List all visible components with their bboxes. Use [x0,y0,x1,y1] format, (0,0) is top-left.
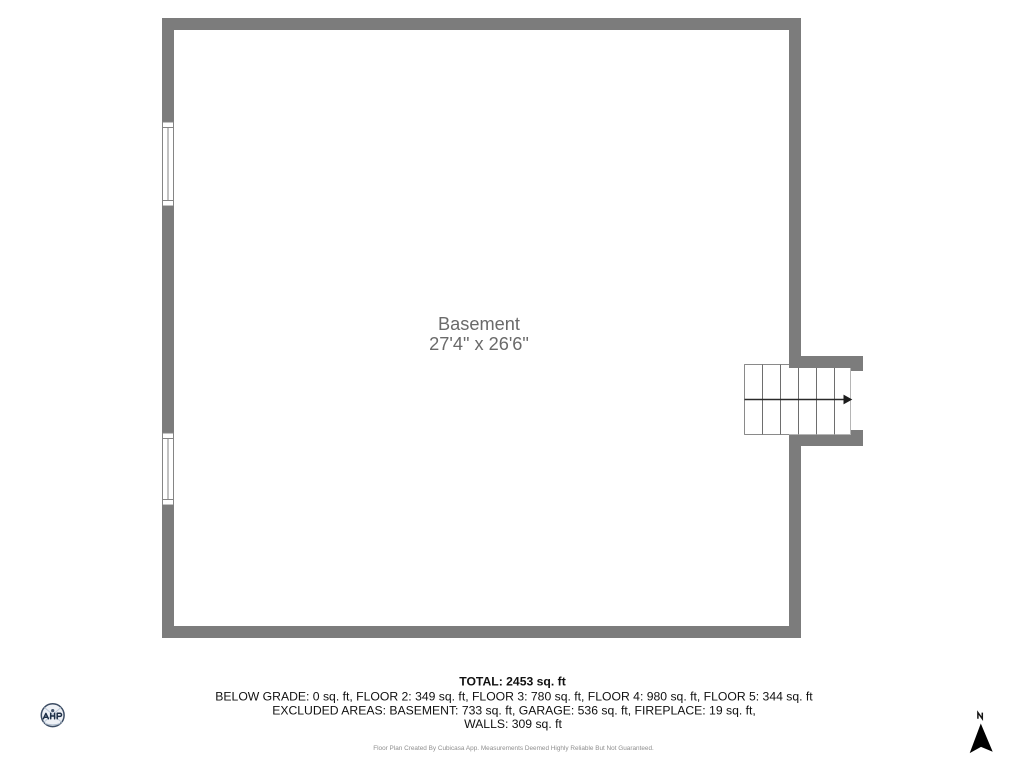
svg-text:BELOW GRADE: 0 sq. ft, FLOOR 2: BELOW GRADE: 0 sq. ft, FLOOR 2: 349 sq. … [215,690,813,704]
svg-text:Basement: Basement [438,314,520,334]
svg-text:27'4" x 26'6": 27'4" x 26'6" [429,334,529,354]
svg-text:TOTAL: 2453 sq. ft: TOTAL: 2453 sq. ft [459,675,566,689]
svg-text:Floor Plan Created By Cubicasa: Floor Plan Created By Cubicasa App. Meas… [373,745,654,752]
svg-text:WALLS: 309 sq. ft: WALLS: 309 sq. ft [464,717,562,731]
svg-text:EXCLUDED AREAS: BASEMENT: 733: EXCLUDED AREAS: BASEMENT: 733 sq. ft, GA… [272,704,756,718]
